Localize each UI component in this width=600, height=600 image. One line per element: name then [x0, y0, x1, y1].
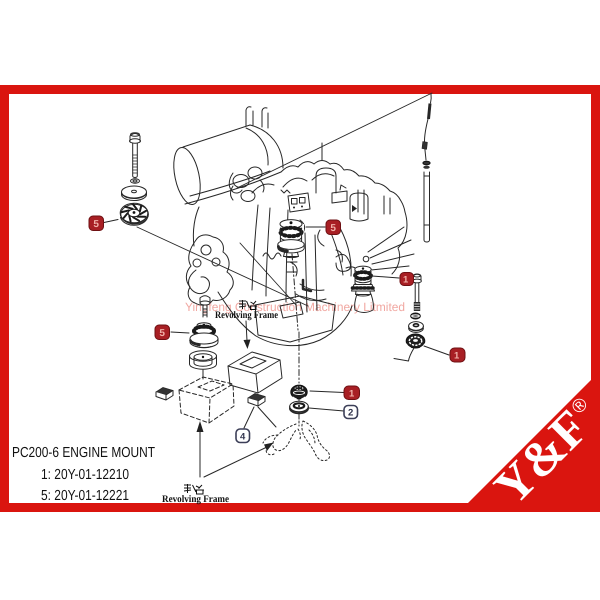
- svg-text:2: 2: [348, 408, 353, 419]
- svg-text:4: 4: [240, 432, 246, 443]
- svg-text:PC200-6 ENGINE MOUNT: PC200-6 ENGINE MOUNT: [12, 445, 155, 461]
- svg-text:5: 20Y-01-12221: 5: 20Y-01-12221: [41, 488, 129, 504]
- svg-text:Revolving Frame: Revolving Frame: [215, 310, 278, 321]
- svg-text:5: 5: [330, 223, 336, 234]
- svg-text:5: 5: [159, 328, 165, 339]
- svg-text:5: 5: [93, 219, 99, 230]
- svg-text:Revolving Frame: Revolving Frame: [162, 494, 230, 505]
- svg-text:1: 1: [349, 389, 355, 400]
- svg-text:1: 20Y-01-12210: 1: 20Y-01-12210: [41, 467, 129, 483]
- svg-text:1: 1: [403, 275, 409, 286]
- svg-text:1: 1: [454, 351, 460, 362]
